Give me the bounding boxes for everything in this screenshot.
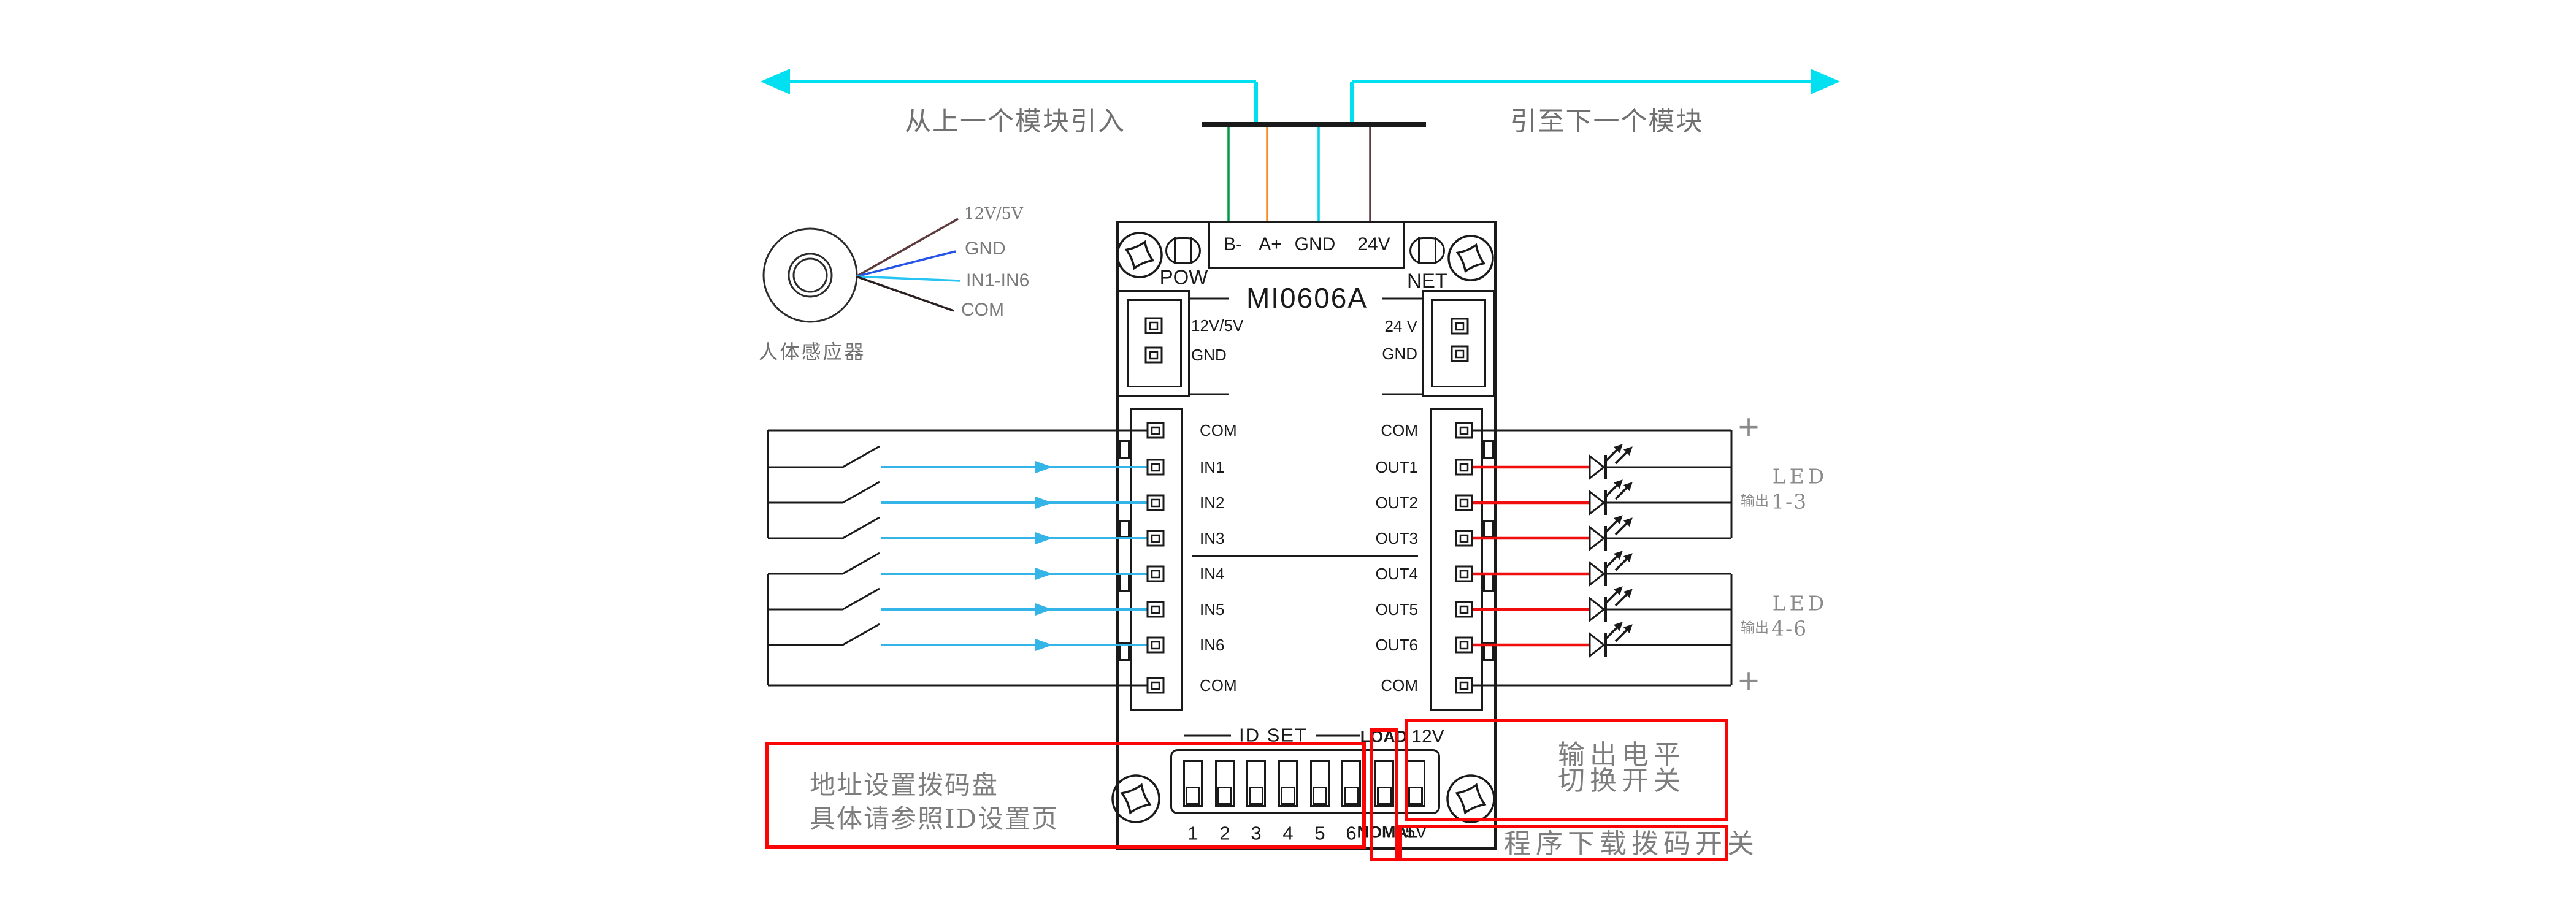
sensor-wire-label: COM	[961, 301, 1004, 319]
input-flow-arrowhead-5	[1035, 603, 1052, 616]
input-flow-arrowhead-1	[1035, 461, 1052, 473]
led-emission-arrowhead	[1623, 589, 1633, 598]
connector-tab	[1483, 440, 1494, 459]
led-emission-arrow	[1616, 558, 1628, 570]
led-output-prefix: 输出	[1741, 622, 1769, 636]
sensor-caption: 人体感应器	[758, 342, 865, 362]
led-emission-arrow	[1616, 451, 1628, 463]
input-pin-label: IN6	[1200, 637, 1224, 653]
led-emission-arrow	[1616, 487, 1628, 499]
led-emission-arrowhead	[1623, 553, 1633, 562]
led-triangle-icon-5	[1590, 598, 1604, 620]
led-emission-arrowhead	[1614, 479, 1623, 489]
input-pin-label: COM	[1200, 677, 1237, 693]
led-emission-arrow	[1606, 449, 1618, 461]
terminal-pin-label: GND	[1295, 235, 1336, 254]
input-flow-arrowhead-6	[1035, 639, 1052, 651]
sensor-wire-com	[856, 276, 954, 311]
led-output-range: 4-6	[1771, 619, 1807, 639]
switch-arm-icon-2	[843, 482, 880, 503]
input-pin-label: IN5	[1200, 601, 1224, 617]
connector-tab	[1119, 642, 1130, 661]
pow-label: POW	[1160, 267, 1208, 288]
sensor-wire-gnd	[856, 251, 956, 276]
input-pin-label: COM	[1200, 422, 1237, 438]
power-connector-right-inner	[1431, 299, 1486, 387]
led-triangle-icon-2	[1590, 492, 1604, 514]
power-right-label: GND	[1382, 346, 1417, 362]
input-pin-label: IN1	[1200, 459, 1224, 475]
address-annotation-box	[765, 742, 1366, 849]
led-output-prefix: 输出	[1741, 495, 1769, 509]
led-emission-arrowhead	[1614, 551, 1623, 560]
led-emission-arrowhead	[1614, 622, 1623, 631]
connector-tab	[1119, 520, 1130, 538]
output-connector-body	[1430, 408, 1483, 711]
plus-mark-bottom: +	[1737, 666, 1761, 694]
input-flow-arrowhead-4	[1035, 568, 1052, 580]
power-connector-left-inner	[1127, 299, 1182, 387]
bus-bar	[1202, 122, 1426, 127]
load-switch-annotation-box	[1370, 728, 1398, 861]
led-group-title: LED	[1773, 467, 1828, 487]
two-pin-connector-inner	[1174, 237, 1192, 264]
led-emission-arrow	[1606, 591, 1618, 603]
led-emission-arrow	[1616, 593, 1628, 606]
module-title: MI0606A	[1246, 284, 1368, 312]
led-emission-arrow	[1606, 484, 1618, 497]
connector-tab	[1119, 440, 1130, 459]
led-output-range: 1-3	[1771, 492, 1807, 512]
sensor-wire-label: IN1-IN6	[966, 272, 1029, 290]
led-emission-arrow	[1606, 627, 1618, 639]
led-group-sub: 输出1-3	[1741, 492, 1807, 512]
arrow-label-right: 引至下一个模块	[1511, 109, 1704, 135]
switch-arm-icon-6	[843, 624, 880, 645]
switch-arm-icon-3	[843, 517, 880, 538]
led-emission-arrowhead	[1623, 446, 1633, 455]
led-emission-arrowhead	[1623, 517, 1633, 527]
input-flow-arrowhead-2	[1035, 497, 1052, 509]
led-group-title: LED	[1773, 593, 1828, 614]
led-triangle-icon-6	[1590, 634, 1604, 656]
net-label: NET	[1407, 271, 1447, 291]
plus-mark-top: +	[1737, 412, 1761, 440]
led-group-sub: 输出4-6	[1741, 619, 1807, 639]
wiring-diagram-canvas: 从上一个模块引入引至下一个模块MI0606APOWNET人体感应器++ID SE…	[0, 0, 2576, 911]
led-emission-arrowhead	[1623, 482, 1633, 491]
power-left-label: 12V/5V	[1191, 318, 1243, 334]
input-pin-label: IN2	[1200, 495, 1224, 511]
sensor-wire-label: GND	[965, 240, 1006, 258]
power-left-label: GND	[1191, 347, 1227, 363]
power-right-label: 24 V	[1385, 318, 1418, 334]
led-emission-arrowhead	[1614, 444, 1623, 453]
input-connector-body	[1130, 408, 1183, 711]
output-pin-label: OUT5	[1376, 601, 1418, 617]
switch-arm-icon-5	[843, 589, 880, 609]
sensor-lens-circle	[794, 259, 827, 292]
input-pin-label: IN4	[1200, 566, 1224, 582]
level-switch-annotation-box	[1405, 719, 1728, 821]
connector-tab	[1483, 573, 1494, 592]
output-pin-label: OUT4	[1376, 566, 1418, 582]
led-emission-arrow	[1606, 520, 1618, 532]
arrow-label-left: 从上一个模块引入	[905, 109, 1125, 135]
output-pin-label: OUT2	[1376, 495, 1418, 511]
led-triangle-icon-4	[1590, 563, 1604, 585]
sensor-wire-power	[856, 219, 958, 276]
led-triangle-icon-1	[1590, 456, 1604, 478]
connector-tab	[1119, 573, 1130, 592]
terminal-pin-label: 24V	[1357, 235, 1390, 254]
sensor-wire-label: 12V/5V	[964, 206, 1023, 222]
sensor-ring-circle	[789, 254, 832, 297]
sensor-wire-signal	[856, 276, 960, 281]
output-pin-label: OUT1	[1376, 459, 1418, 475]
connector-tab	[1483, 642, 1494, 661]
output-pin-label: COM	[1381, 677, 1418, 693]
sensor-outer-circle	[764, 229, 857, 322]
right-arrowhead-icon	[1811, 69, 1840, 94]
led-emission-arrow	[1606, 555, 1618, 568]
led-emission-arrow	[1616, 629, 1628, 641]
led-triangle-icon-3	[1590, 527, 1604, 549]
input-flow-arrowhead-3	[1035, 532, 1052, 544]
connector-tab	[1483, 520, 1494, 538]
output-pin-label: OUT3	[1376, 530, 1418, 546]
two-pin-connector-inner	[1418, 237, 1436, 264]
terminal-pin-label: B-	[1224, 235, 1242, 254]
left-arrowhead-icon	[761, 69, 790, 94]
terminal-pin-label: A+	[1259, 235, 1282, 254]
output-pin-label: OUT6	[1376, 637, 1418, 653]
led-emission-arrow	[1616, 522, 1628, 535]
led-emission-arrowhead	[1614, 586, 1623, 595]
led-emission-arrowhead	[1614, 515, 1623, 524]
input-pin-label: IN3	[1200, 530, 1224, 546]
switch-arm-icon-1	[843, 446, 880, 467]
led-emission-arrowhead	[1623, 624, 1633, 633]
output-pin-label: COM	[1381, 422, 1418, 438]
program-annotation-box	[1398, 825, 1728, 861]
switch-arm-icon-4	[843, 553, 880, 574]
